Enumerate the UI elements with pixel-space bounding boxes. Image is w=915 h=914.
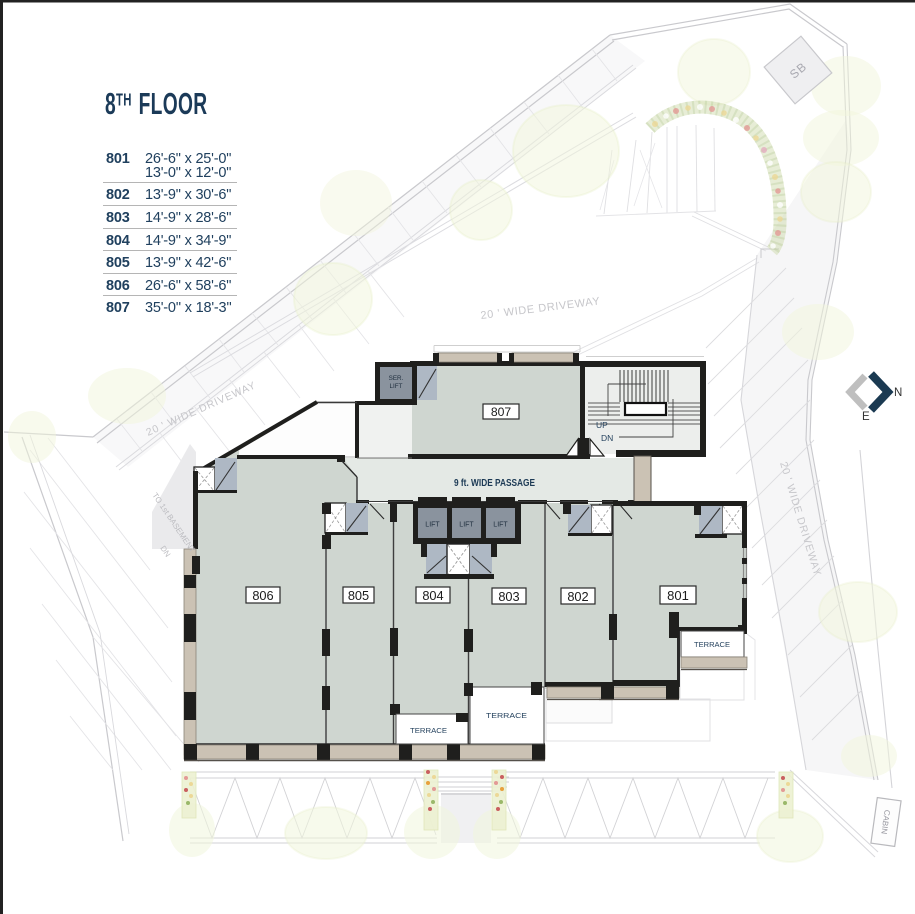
svg-text:TERRACE: TERRACE — [694, 642, 730, 649]
svg-text:802: 802 — [106, 187, 130, 203]
svg-text:807: 807 — [106, 300, 130, 316]
svg-text:806: 806 — [252, 588, 273, 603]
svg-text:26'-6" x 58'-6": 26'-6" x 58'-6" — [145, 278, 231, 294]
svg-text:35'-0'' x 18'-3'': 35'-0'' x 18'-3'' — [145, 300, 232, 316]
svg-text:804: 804 — [422, 588, 443, 603]
svg-text:13'-9" x 42'-6": 13'-9" x 42'-6" — [145, 255, 231, 271]
svg-text:801: 801 — [667, 588, 689, 603]
svg-text:14'-9" x 28'-6": 14'-9" x 28'-6" — [145, 210, 231, 226]
svg-text:DN: DN — [601, 433, 613, 443]
svg-text:803: 803 — [498, 589, 519, 604]
svg-text:LIFT: LIFT — [493, 522, 508, 529]
svg-text:803: 803 — [106, 210, 130, 226]
svg-text:804: 804 — [106, 233, 130, 249]
svg-text:TERRACE: TERRACE — [486, 711, 527, 720]
svg-text:13'-0" x 12'-0": 13'-0" x 12'-0" — [145, 165, 231, 181]
svg-text:9 ft. WIDE PASSAGE: 9 ft. WIDE PASSAGE — [454, 478, 535, 489]
svg-text:E: E — [862, 411, 870, 423]
svg-text:802: 802 — [567, 589, 588, 604]
svg-text:14'-9" x 34'-9": 14'-9" x 34'-9" — [145, 233, 231, 249]
svg-text:805: 805 — [106, 255, 130, 271]
svg-text:801: 801 — [106, 151, 130, 167]
svg-text:13'-9" x 30'-6": 13'-9" x 30'-6" — [145, 187, 231, 203]
svg-text:N: N — [894, 387, 902, 399]
svg-text:TERRACE: TERRACE — [410, 728, 447, 735]
svg-text:SER.: SER. — [389, 375, 404, 382]
svg-text:805: 805 — [348, 588, 369, 603]
svg-text:LIFT: LIFT — [390, 383, 403, 390]
svg-text:UP: UP — [596, 420, 608, 430]
svg-text:807: 807 — [491, 405, 512, 419]
svg-text:LIFT: LIFT — [459, 522, 474, 529]
svg-text:LIFT: LIFT — [425, 522, 440, 529]
svg-text:806: 806 — [106, 278, 130, 294]
